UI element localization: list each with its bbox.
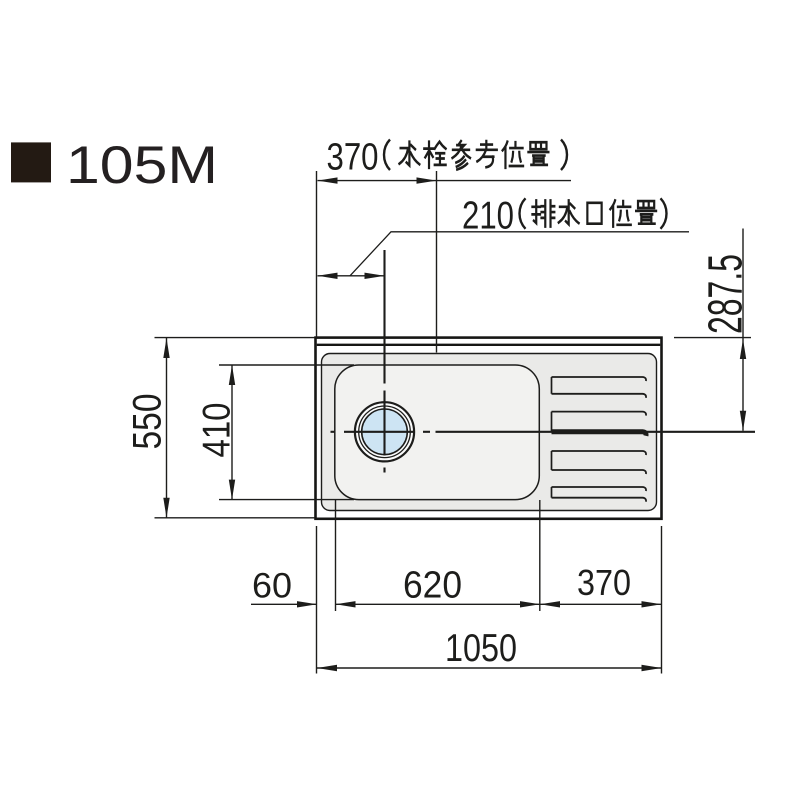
svg-text:370: 370 bbox=[327, 137, 379, 179]
svg-text:287.5: 287.5 bbox=[700, 254, 753, 334]
svg-text:620: 620 bbox=[403, 565, 462, 607]
svg-text:550: 550 bbox=[126, 394, 170, 450]
svg-text:60: 60 bbox=[252, 567, 292, 606]
svg-text:210: 210 bbox=[462, 194, 514, 237]
svg-text:370: 370 bbox=[577, 562, 631, 603]
svg-text:105M: 105M bbox=[66, 136, 218, 195]
svg-text:1050: 1050 bbox=[445, 627, 517, 670]
